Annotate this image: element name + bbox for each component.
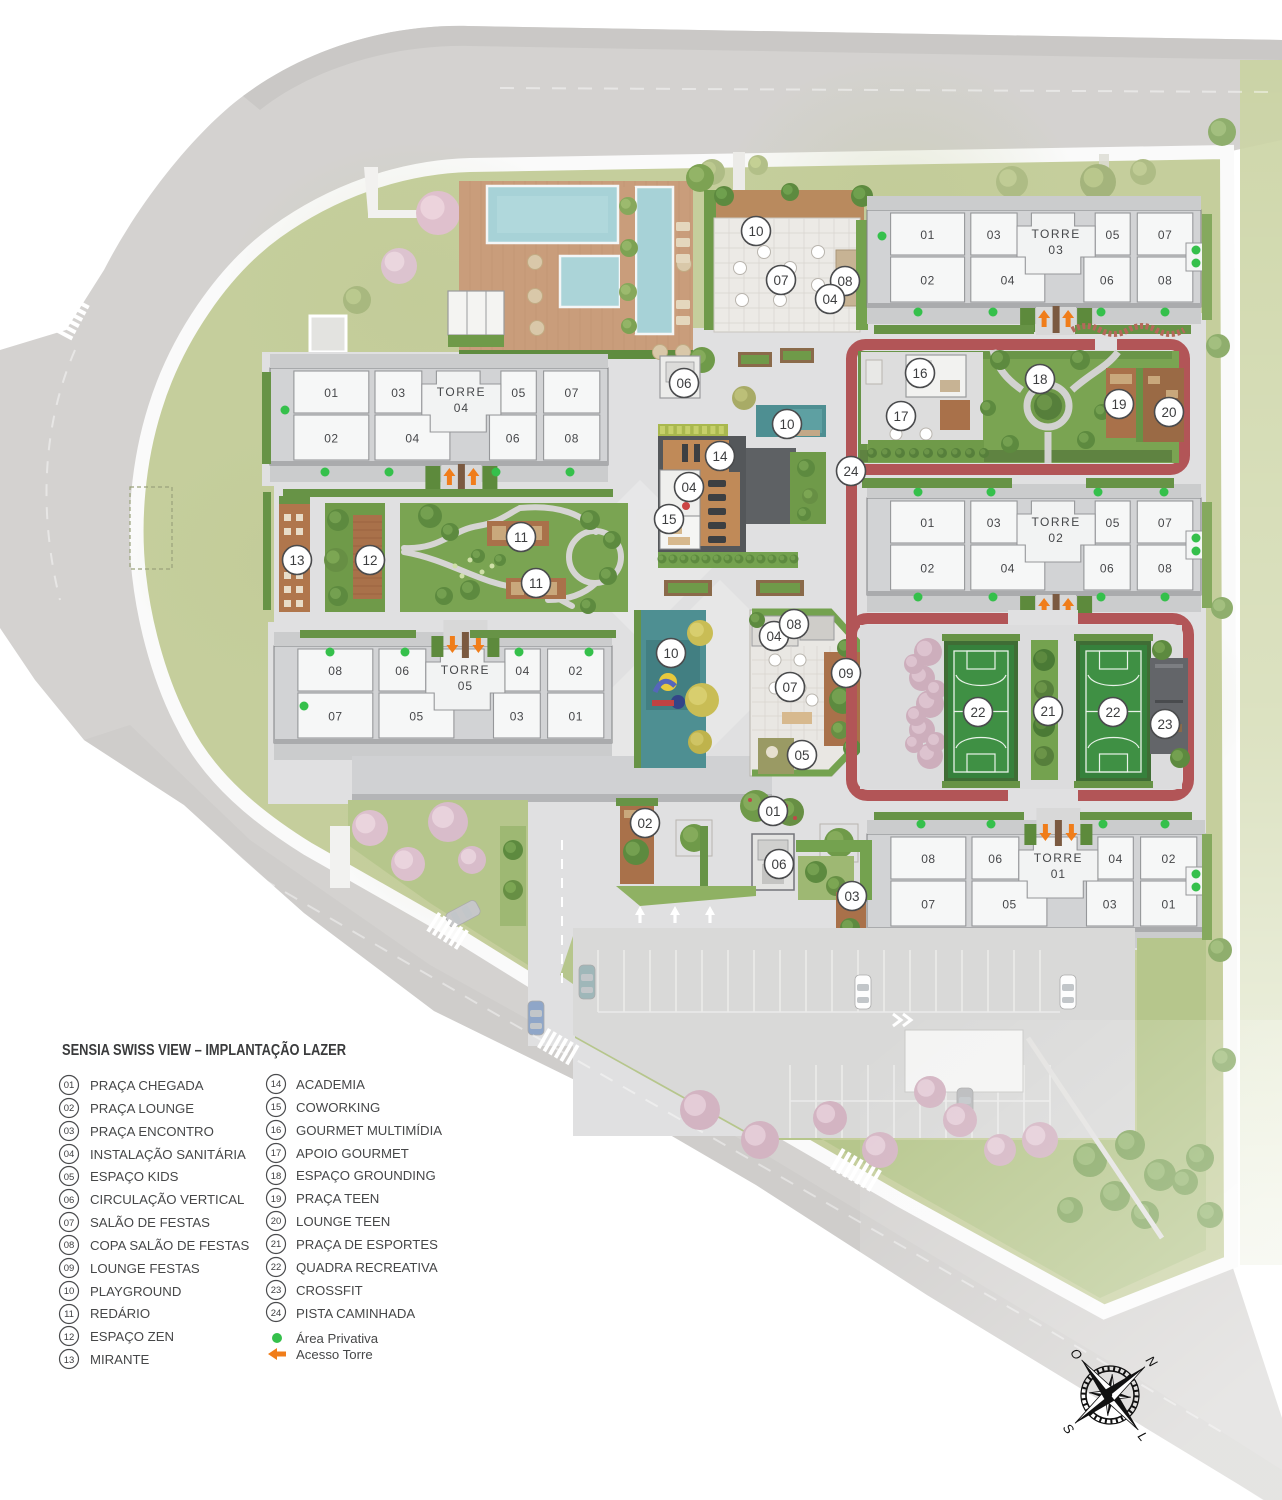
svg-text:04: 04	[766, 629, 782, 644]
svg-text:02: 02	[1048, 531, 1063, 545]
svg-text:06: 06	[64, 1195, 75, 1206]
svg-text:19: 19	[271, 1194, 282, 1205]
svg-text:02: 02	[64, 1103, 75, 1114]
svg-text:03: 03	[987, 516, 1001, 530]
svg-text:TORRE: TORRE	[441, 663, 490, 677]
svg-text:ESPAÇO KIDS: ESPAÇO KIDS	[90, 1169, 179, 1184]
svg-text:16: 16	[271, 1125, 282, 1136]
svg-text:03: 03	[391, 386, 405, 400]
svg-text:11: 11	[514, 530, 528, 545]
svg-text:05: 05	[1106, 228, 1120, 242]
svg-text:04: 04	[515, 664, 529, 678]
svg-text:Acesso Torre: Acesso Torre	[296, 1347, 373, 1362]
svg-text:17: 17	[271, 1148, 282, 1159]
svg-text:10: 10	[779, 417, 794, 432]
svg-text:MIRANTE: MIRANTE	[90, 1352, 150, 1367]
svg-text:04: 04	[1001, 274, 1015, 288]
svg-text:PISTA CAMINHADA: PISTA CAMINHADA	[296, 1306, 415, 1321]
svg-text:TORRE: TORRE	[437, 385, 486, 399]
svg-text:05: 05	[794, 748, 809, 763]
svg-text:06: 06	[676, 376, 691, 391]
svg-text:06: 06	[506, 432, 520, 446]
svg-text:04: 04	[1108, 852, 1122, 866]
svg-text:14: 14	[712, 449, 728, 464]
svg-text:05: 05	[511, 386, 525, 400]
svg-text:06: 06	[771, 857, 786, 872]
svg-text:06: 06	[1100, 274, 1114, 288]
svg-text:21: 21	[271, 1239, 282, 1250]
svg-text:TORRE: TORRE	[1034, 851, 1083, 865]
svg-text:12: 12	[362, 553, 377, 568]
svg-text:22: 22	[271, 1262, 282, 1273]
svg-text:22: 22	[970, 705, 985, 720]
svg-text:07: 07	[64, 1218, 75, 1229]
svg-text:07: 07	[782, 680, 797, 695]
svg-text:04: 04	[1001, 562, 1015, 576]
svg-text:08: 08	[1158, 274, 1172, 288]
svg-text:19: 19	[1111, 397, 1126, 412]
svg-text:07: 07	[565, 386, 579, 400]
svg-text:APOIO GOURMET: APOIO GOURMET	[296, 1146, 409, 1161]
svg-text:01: 01	[765, 804, 780, 819]
svg-text:04: 04	[822, 292, 838, 307]
svg-text:02: 02	[920, 274, 934, 288]
svg-text:06: 06	[988, 852, 1002, 866]
svg-text:02: 02	[920, 562, 934, 576]
svg-text:03: 03	[1103, 898, 1117, 912]
svg-text:02: 02	[569, 664, 583, 678]
svg-text:15: 15	[661, 512, 676, 527]
svg-text:01: 01	[1162, 898, 1176, 912]
svg-text:23: 23	[1157, 717, 1172, 732]
svg-text:01: 01	[920, 516, 934, 530]
svg-text:05: 05	[458, 679, 473, 693]
svg-text:04: 04	[405, 432, 419, 446]
svg-text:03: 03	[987, 228, 1001, 242]
svg-text:Área Privativa: Área Privativa	[296, 1331, 379, 1346]
svg-text:02: 02	[637, 816, 652, 831]
svg-text:09: 09	[64, 1263, 75, 1274]
svg-text:03: 03	[1048, 243, 1063, 257]
svg-text:08: 08	[1158, 562, 1172, 576]
svg-text:07: 07	[921, 898, 935, 912]
svg-text:COPA SALÃO DE FESTAS: COPA SALÃO DE FESTAS	[90, 1238, 249, 1253]
svg-text:08: 08	[837, 274, 852, 289]
svg-text:04: 04	[64, 1149, 75, 1160]
svg-text:02: 02	[1162, 852, 1176, 866]
svg-text:ESPAÇO ZEN: ESPAÇO ZEN	[90, 1329, 174, 1344]
svg-text:08: 08	[921, 852, 935, 866]
svg-text:COWORKING: COWORKING	[296, 1100, 380, 1115]
svg-text:01: 01	[1051, 867, 1066, 881]
svg-text:QUADRA RECREATIVA: QUADRA RECREATIVA	[296, 1260, 438, 1275]
svg-text:13: 13	[64, 1355, 75, 1366]
svg-text:PRAÇA LOUNGE: PRAÇA LOUNGE	[90, 1101, 194, 1116]
svg-text:ACADEMIA: ACADEMIA	[296, 1077, 365, 1092]
svg-text:04: 04	[454, 401, 469, 415]
svg-text:TORRE: TORRE	[1031, 515, 1080, 529]
svg-text:01: 01	[920, 228, 934, 242]
svg-text:01: 01	[569, 710, 583, 724]
svg-text:13: 13	[289, 553, 304, 568]
svg-text:TORRE: TORRE	[1031, 227, 1080, 241]
svg-text:ESPAÇO GROUNDING: ESPAÇO GROUNDING	[296, 1168, 436, 1183]
svg-text:17: 17	[893, 409, 908, 424]
svg-text:LOUNGE TEEN: LOUNGE TEEN	[296, 1214, 390, 1229]
svg-text:07: 07	[328, 710, 342, 724]
svg-text:08: 08	[786, 617, 801, 632]
svg-text:CIRCULAÇÃO VERTICAL: CIRCULAÇÃO VERTICAL	[90, 1192, 244, 1207]
svg-text:CROSSFIT: CROSSFIT	[296, 1283, 363, 1298]
svg-text:PRAÇA TEEN: PRAÇA TEEN	[296, 1191, 379, 1206]
svg-text:24: 24	[271, 1308, 282, 1319]
svg-text:11: 11	[529, 576, 543, 591]
svg-text:GOURMET MULTIMÍDIA: GOURMET MULTIMÍDIA	[296, 1123, 442, 1138]
svg-text:08: 08	[64, 1240, 75, 1251]
svg-text:18: 18	[271, 1171, 282, 1182]
svg-text:22: 22	[1105, 705, 1120, 720]
svg-text:20: 20	[1161, 405, 1176, 420]
svg-text:03: 03	[64, 1126, 75, 1137]
svg-text:12: 12	[64, 1332, 75, 1343]
svg-text:05: 05	[64, 1172, 75, 1183]
svg-text:23: 23	[271, 1285, 282, 1296]
svg-text:01: 01	[64, 1080, 75, 1091]
svg-text:10: 10	[64, 1286, 75, 1297]
svg-text:05: 05	[1002, 898, 1016, 912]
svg-text:20: 20	[271, 1216, 282, 1227]
svg-text:05: 05	[1106, 516, 1120, 530]
svg-text:15: 15	[271, 1102, 282, 1113]
svg-text:18: 18	[1032, 372, 1047, 387]
svg-text:06: 06	[395, 664, 409, 678]
svg-text:16: 16	[912, 366, 927, 381]
svg-text:07: 07	[1158, 228, 1172, 242]
svg-text:05: 05	[409, 710, 423, 724]
svg-text:PLAYGROUND: PLAYGROUND	[90, 1284, 181, 1299]
svg-text:PRAÇA CHEGADA: PRAÇA CHEGADA	[90, 1078, 204, 1093]
svg-text:10: 10	[748, 224, 763, 239]
svg-text:03: 03	[844, 889, 859, 904]
svg-text:02: 02	[324, 432, 338, 446]
svg-text:24: 24	[843, 464, 859, 479]
svg-text:10: 10	[663, 646, 678, 661]
svg-text:08: 08	[565, 432, 579, 446]
svg-text:PRAÇA DE ESPORTES: PRAÇA DE ESPORTES	[296, 1237, 438, 1252]
svg-text:03: 03	[510, 710, 524, 724]
svg-text:21: 21	[1040, 704, 1055, 719]
svg-text:11: 11	[64, 1309, 74, 1320]
svg-text:09: 09	[838, 666, 853, 681]
svg-text:07: 07	[1158, 516, 1172, 530]
svg-text:14: 14	[271, 1079, 282, 1090]
svg-text:06: 06	[1100, 562, 1114, 576]
svg-text:04: 04	[681, 480, 697, 495]
svg-text:01: 01	[324, 386, 338, 400]
svg-text:07: 07	[773, 273, 788, 288]
svg-text:08: 08	[328, 664, 342, 678]
svg-text:REDÁRIO: REDÁRIO	[90, 1306, 150, 1321]
svg-text:SALÃO DE FESTAS: SALÃO DE FESTAS	[90, 1215, 210, 1230]
svg-text:PRAÇA ENCONTRO: PRAÇA ENCONTRO	[90, 1124, 214, 1139]
svg-text:SENSIA SWISS VIEW – IMPLANTAÇÃ: SENSIA SWISS VIEW – IMPLANTAÇÃO LAZER	[62, 1039, 346, 1059]
svg-text:LOUNGE FESTAS: LOUNGE FESTAS	[90, 1261, 200, 1276]
svg-text:INSTALAÇÃO SANITÁRIA: INSTALAÇÃO SANITÁRIA	[90, 1147, 246, 1162]
